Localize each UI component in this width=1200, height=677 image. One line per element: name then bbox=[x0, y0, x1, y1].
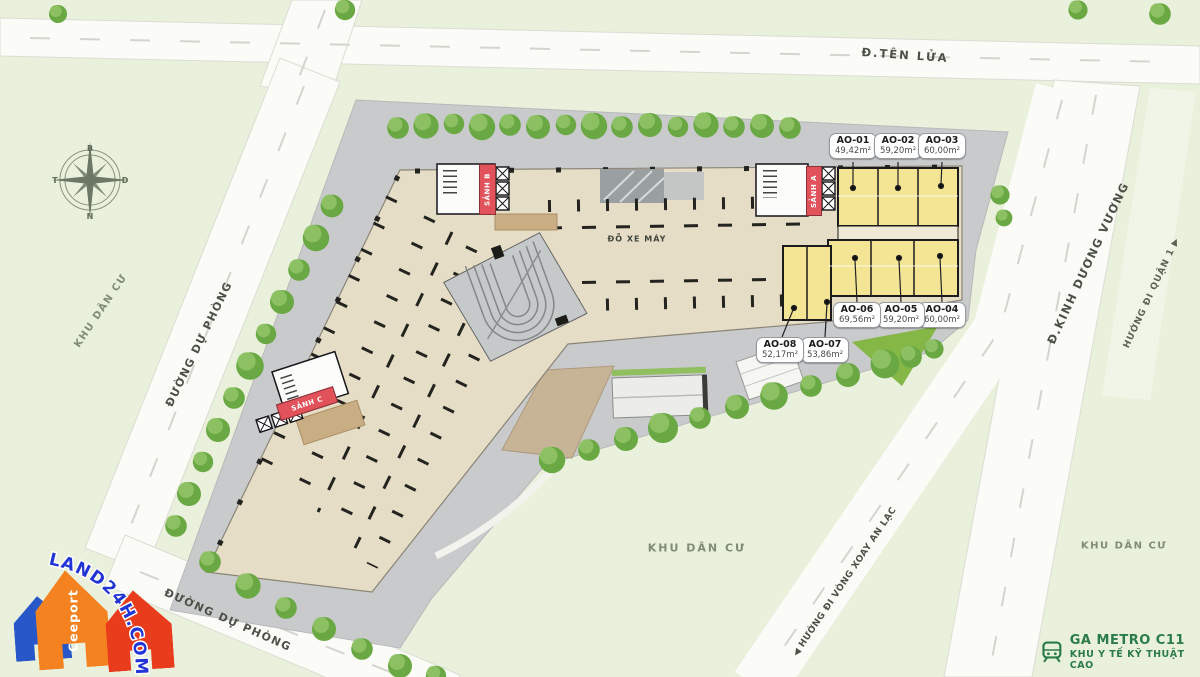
brand-text-svg: LAND24H.COM.VN bbox=[8, 550, 198, 677]
unit-callout-ao-05: AO-05 59,20m² bbox=[877, 302, 925, 328]
site-plan: Đ.TÊN LỬA Đ.KINH DƯƠNG VƯƠNG HƯỚNG ĐI QU… bbox=[0, 0, 1200, 677]
area-label-khu-dan-cu-bottom: KHU DÂN CƯ bbox=[648, 542, 746, 555]
unit-callout-ao-02: AO-02 59,20m² bbox=[874, 133, 922, 159]
compass-south-label: N bbox=[87, 212, 94, 221]
brand-watermark: Ceeport LAND24H.COM.VN bbox=[8, 550, 198, 677]
compass-north-label: B bbox=[87, 144, 93, 153]
compass-icon: B Đ N T bbox=[48, 138, 132, 222]
lobby-sanh-a: SẢNH A bbox=[806, 166, 822, 216]
unit-callout-ao-01: AO-01 49,42m² bbox=[829, 133, 877, 159]
metro-subtitle: KHU Y TẾ KỸ THUẬT CAO bbox=[1070, 649, 1200, 671]
unit-callout-ao-03: AO-03 60,00m² bbox=[918, 133, 966, 159]
compass-east-label: Đ bbox=[122, 176, 129, 185]
unit-callout-ao-06: AO-06 69,56m² bbox=[833, 302, 881, 328]
unit-callout-ao-08: AO-08 52,17m² bbox=[756, 337, 804, 363]
metro-station-label: GA METRO C11 KHU Y TẾ KỸ THUẬT CAO bbox=[1040, 634, 1200, 671]
lobby-sanh-b-label: SẢNH B bbox=[484, 173, 492, 206]
parking-area-label: ĐỖ XE MÁY bbox=[608, 235, 667, 244]
brand-name: LAND24H.COM.VN bbox=[8, 550, 151, 676]
compass-west-label: T bbox=[52, 176, 58, 185]
metro-icon bbox=[1040, 639, 1064, 665]
unit-callout-ao-04: AO-04 60,00m² bbox=[918, 302, 966, 328]
metro-title: GA METRO C11 bbox=[1070, 634, 1200, 649]
lobby-sanh-a-label: SẢNH A bbox=[810, 174, 818, 207]
svg-text:LAND24H.COM.VN: LAND24H.COM.VN bbox=[8, 550, 151, 676]
area-label-khu-dan-cu-right: KHU DÂN CƯ bbox=[1081, 541, 1167, 552]
unit-callout-ao-07: AO-07 53,86m² bbox=[801, 337, 849, 363]
lobby-sanh-b: SẢNH B bbox=[479, 164, 496, 215]
